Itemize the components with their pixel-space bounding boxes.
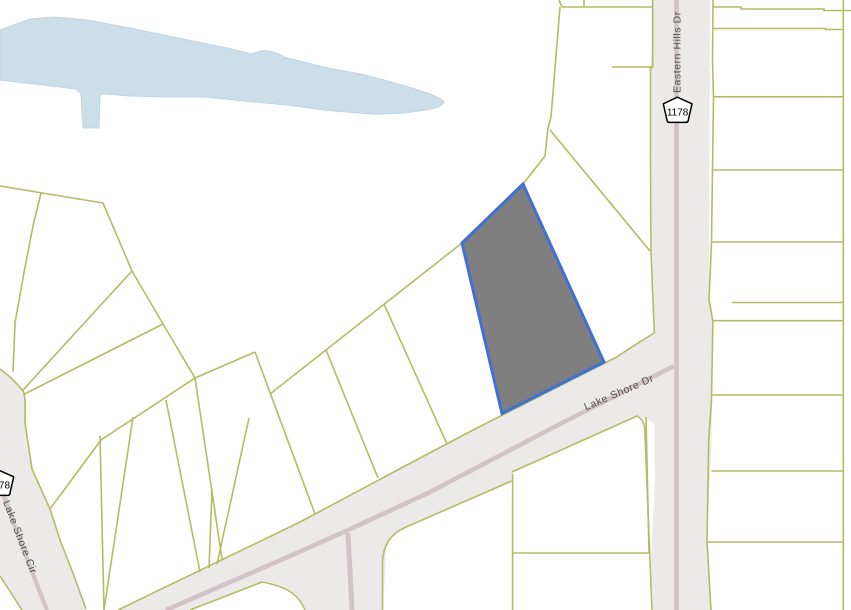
svg-text:Eastern Hills Dr: Eastern Hills Dr xyxy=(673,11,684,93)
svg-text:1178: 1178 xyxy=(667,108,689,119)
svg-text:1178: 1178 xyxy=(0,481,10,492)
